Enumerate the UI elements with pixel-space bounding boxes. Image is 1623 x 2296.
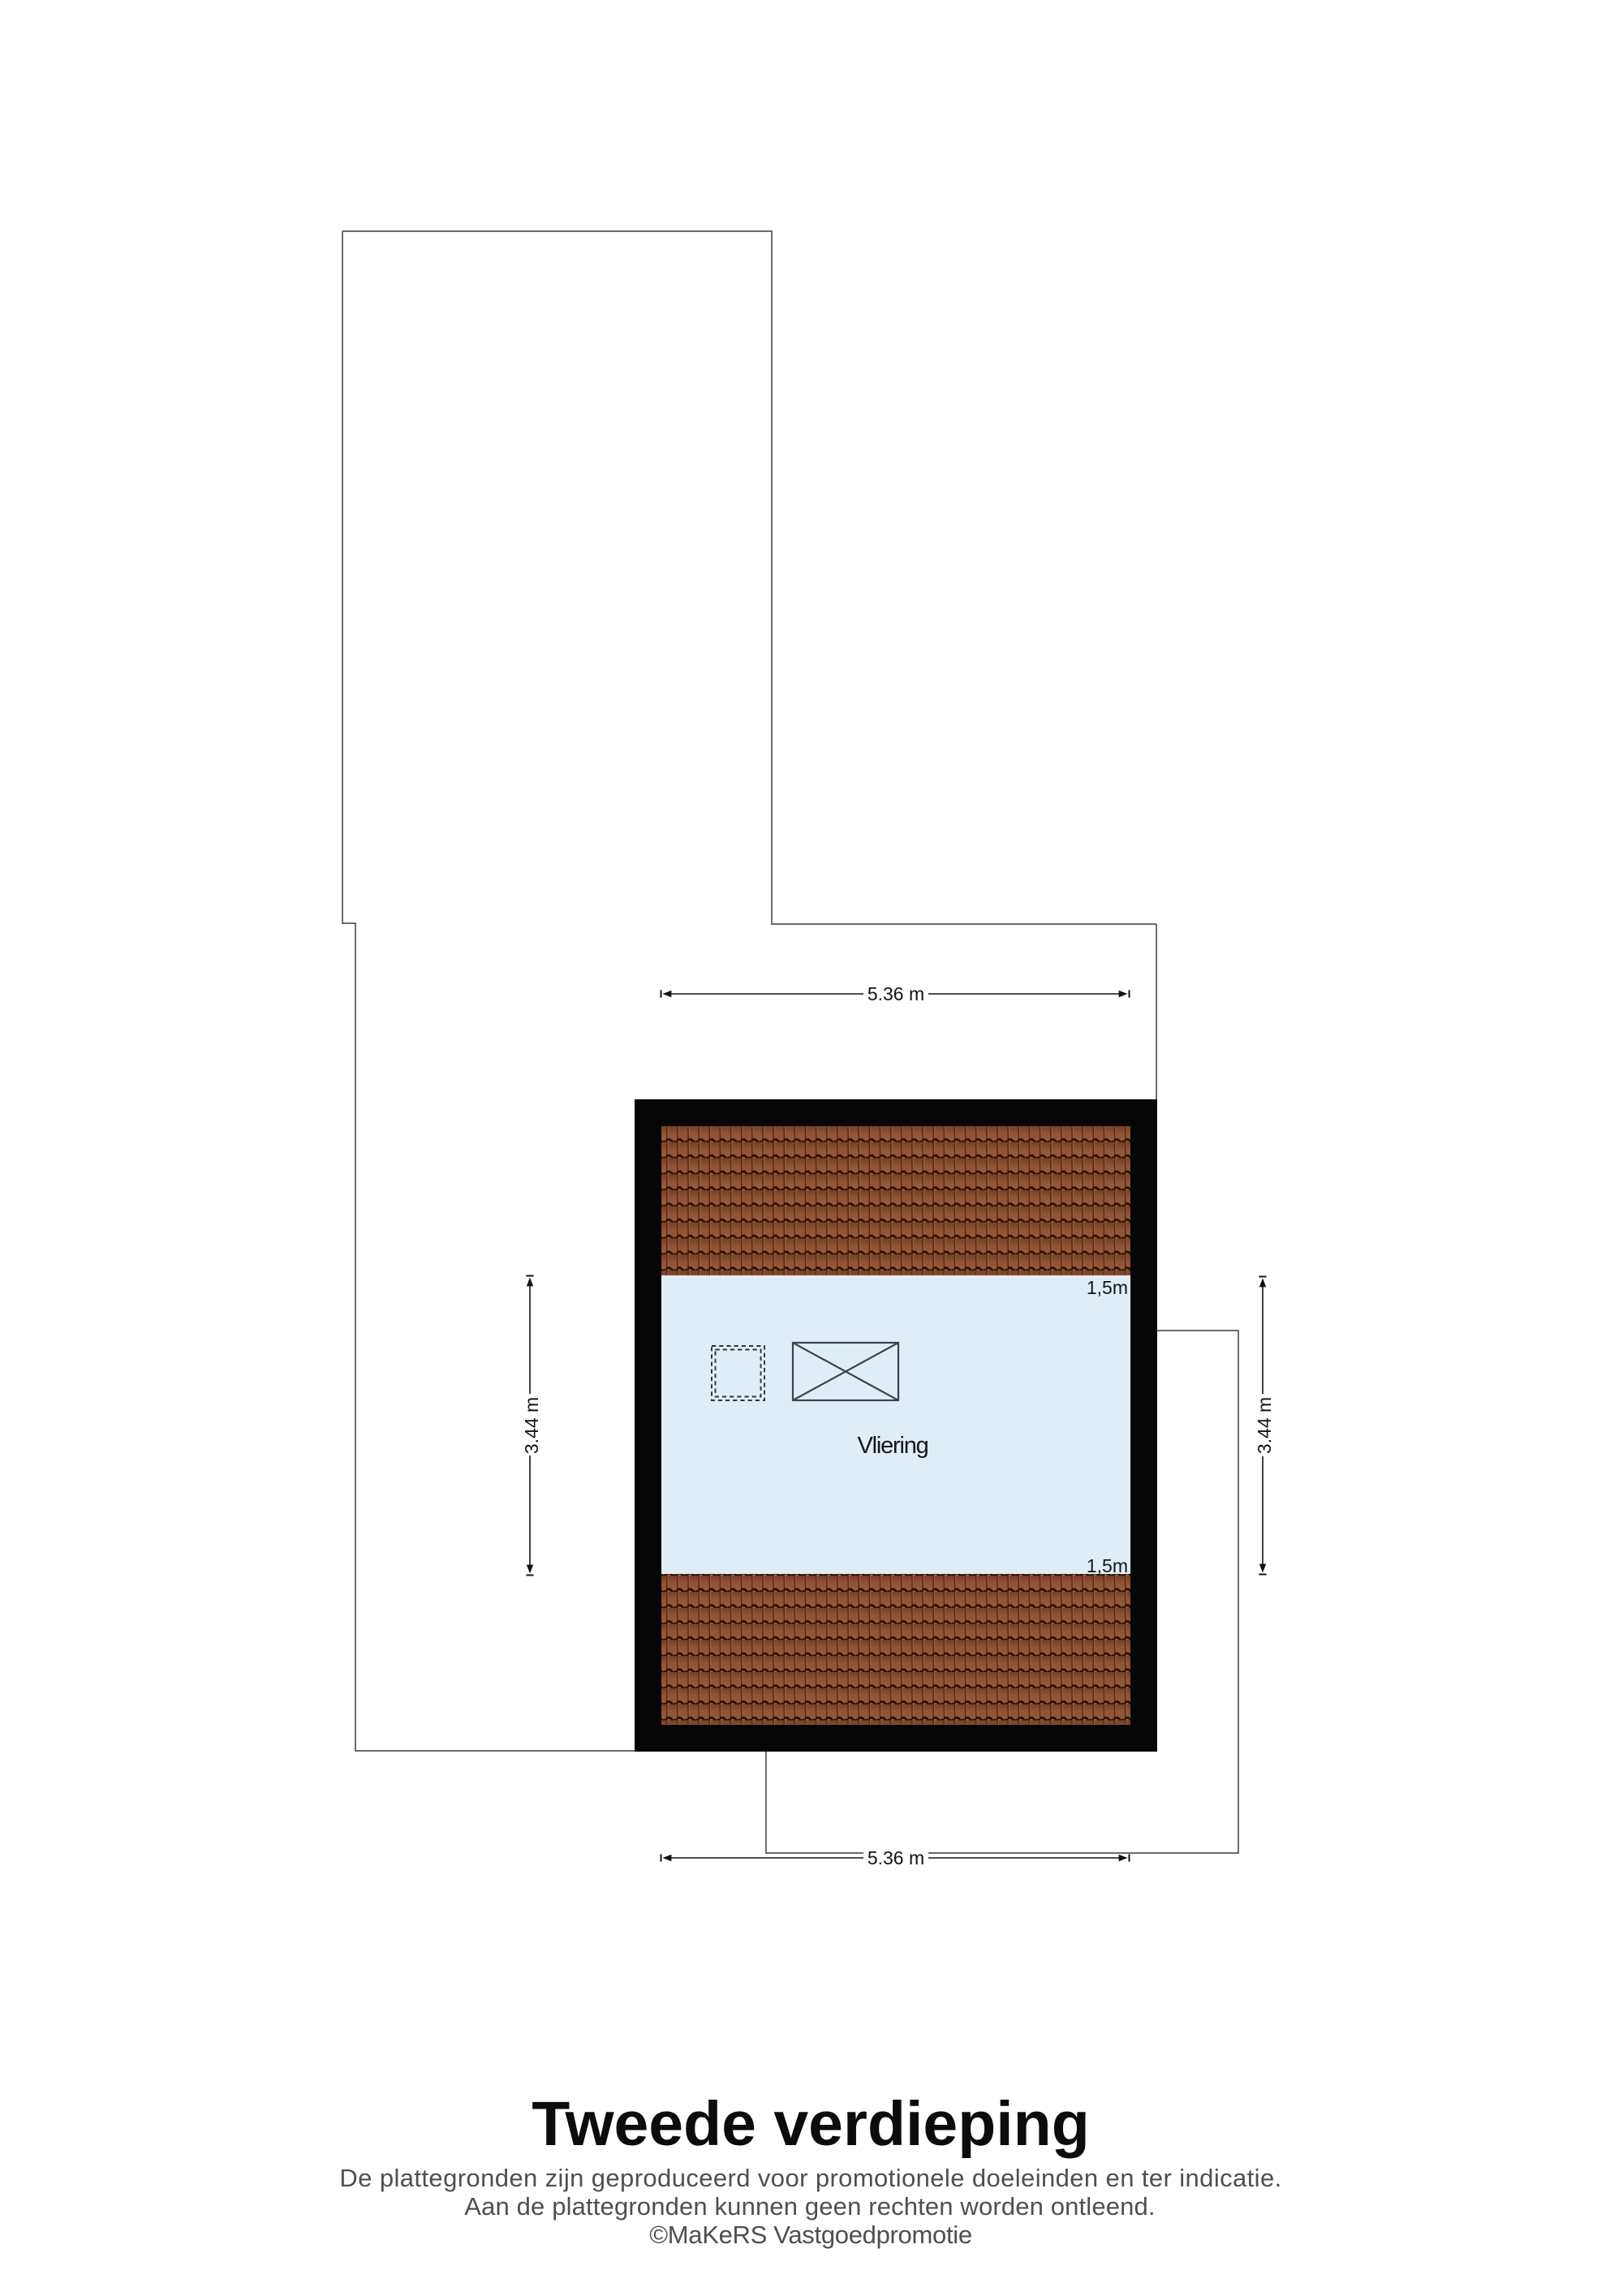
svg-text:3.44 m: 3.44 m <box>521 1397 542 1454</box>
svg-text:De plattegronden zijn geproduc: De plattegronden zijn geproduceerd voor … <box>339 2164 1281 2192</box>
svg-text:1,5m: 1,5m <box>1087 1555 1128 1576</box>
svg-text:5.36 m: 5.36 m <box>867 983 924 1004</box>
svg-text:3.44 m: 3.44 m <box>1254 1397 1275 1454</box>
svg-text:5.36 m: 5.36 m <box>867 1847 924 1868</box>
svg-text:Vliering: Vliering <box>857 1433 928 1459</box>
svg-text:1,5m: 1,5m <box>1087 1277 1128 1298</box>
svg-text:©MaKeRS Vastgoedpromotie: ©MaKeRS Vastgoedpromotie <box>649 2221 972 2249</box>
svg-text:Tweede verdieping: Tweede verdieping <box>532 2089 1089 2159</box>
svg-text:Aan de plattegronden kunnen ge: Aan de plattegronden kunnen geen rechten… <box>464 2192 1155 2221</box>
